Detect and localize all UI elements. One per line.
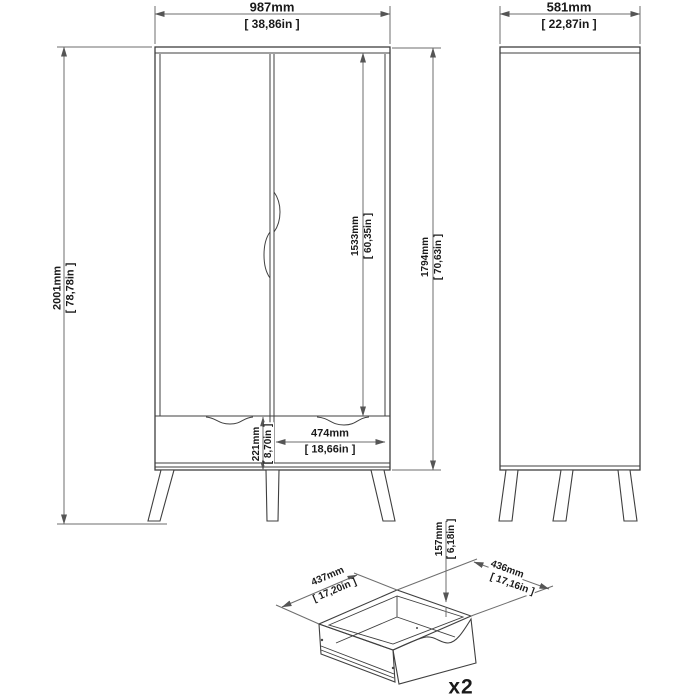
- drawing-linework: [0, 0, 700, 700]
- drawer-front-width-mm-label: 474mm: [310, 429, 350, 440]
- front-total-height-mm-label: 2001mm: [53, 265, 64, 311]
- side-view-drawing: [499, 47, 640, 521]
- drawer-front-height-in-label: [ 8,70in ]: [264, 423, 274, 466]
- left-door-handle-curve: [264, 232, 270, 278]
- front-total-height-in-label: [ 78,78in ]: [66, 262, 77, 315]
- front-width-mm-label: 987mm: [249, 1, 296, 14]
- door-height-in-label: [ 60,35in ]: [364, 212, 374, 260]
- front-view-dimension-lines: [57, 6, 441, 524]
- technical-drawing-canvas: 987mm [ 38,86in ] 2001mm [ 78,78in ] 153…: [0, 0, 700, 700]
- drawer-height-mm-label: 157mm: [435, 521, 445, 557]
- drawer-detail-drawing: [319, 590, 476, 684]
- front-width-in-label: [ 38,86in ]: [243, 18, 300, 30]
- left-drawer-handle-curve: [206, 417, 253, 424]
- side-view-legs: [499, 470, 637, 521]
- drawer-height-in-label: [ 6,18in ]: [447, 518, 457, 561]
- side-depth-in-label: [ 22,87in ]: [540, 18, 597, 30]
- drawer-front-wave-panel: [393, 619, 476, 684]
- right-door-handle-curve: [274, 192, 280, 232]
- right-drawer-handle-curve: [317, 417, 369, 425]
- carcass-height-in-label: [ 70,63in ]: [434, 233, 444, 281]
- drawer-front-width-in-label: [ 18,66in ]: [304, 445, 357, 456]
- door-height-mm-label: 1533mm: [351, 215, 361, 257]
- drawer-front-height-mm-label: 221mm: [252, 426, 262, 462]
- drawer-quantity-label: x2: [447, 677, 474, 698]
- side-depth-mm-label: 581mm: [546, 1, 593, 14]
- carcass-height-mm-label: 1794mm: [421, 236, 431, 278]
- front-view-legs: [148, 470, 395, 521]
